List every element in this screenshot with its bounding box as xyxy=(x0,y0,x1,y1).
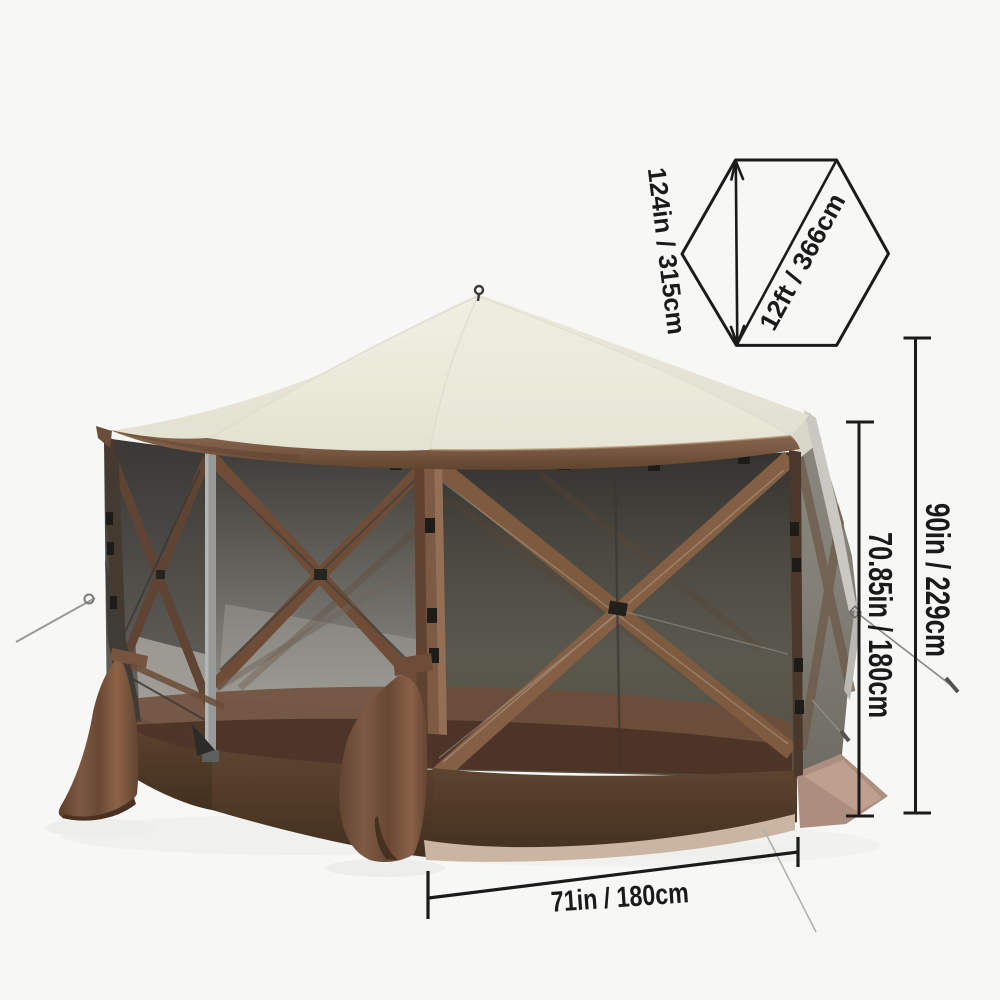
svg-text:70.85in / 180cm: 70.85in / 180cm xyxy=(862,532,899,718)
svg-text:90in / 229cm: 90in / 229cm xyxy=(918,503,956,657)
